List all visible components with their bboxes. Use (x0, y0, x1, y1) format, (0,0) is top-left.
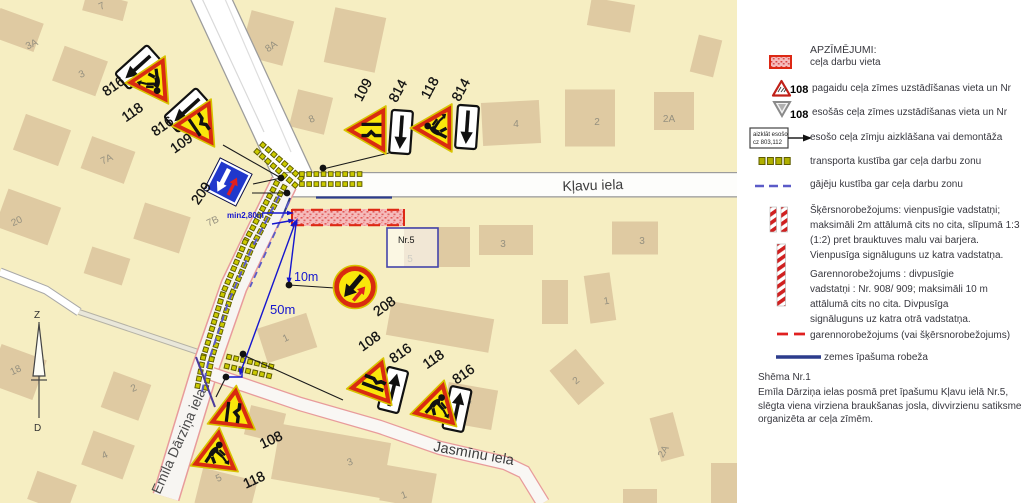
svg-text:aizklāt esošo: aizklāt esošo (753, 132, 788, 138)
svg-text:2: 2 (594, 117, 600, 128)
svg-text:3: 3 (639, 236, 645, 247)
svg-text:4: 4 (513, 119, 519, 130)
svg-text:3: 3 (500, 239, 506, 250)
svg-text:D: D (34, 423, 41, 434)
svg-text:Nr.5: Nr.5 (398, 235, 415, 245)
svg-text:Kļavu iela: Kļavu iela (562, 176, 623, 194)
svg-text:10m: 10m (294, 270, 318, 284)
svg-text:2A: 2A (663, 114, 676, 125)
svg-text:min2,80m: min2,80m (227, 211, 264, 220)
svg-text:Z: Z (34, 310, 40, 321)
svg-text:50m: 50m (270, 302, 295, 317)
svg-text:cz 803,112: cz 803,112 (753, 140, 783, 146)
